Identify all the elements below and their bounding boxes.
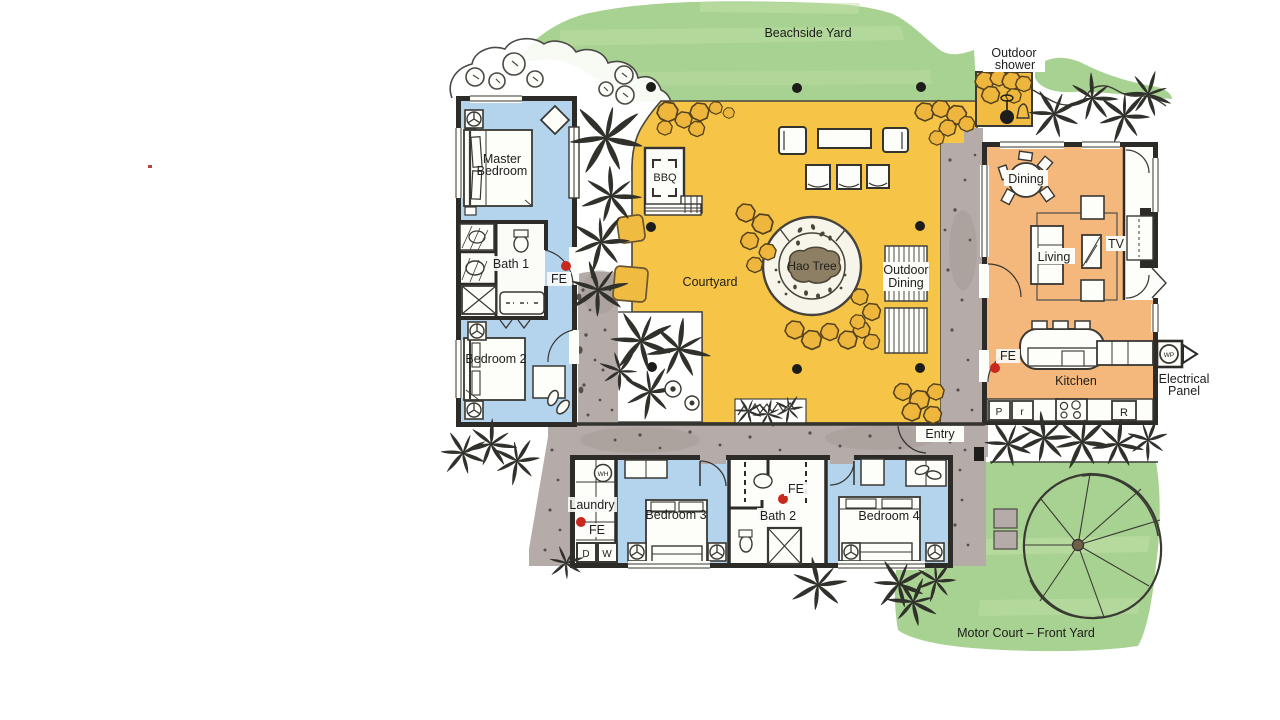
svg-text:Laundry: Laundry	[569, 498, 615, 512]
svg-text:FE: FE	[551, 272, 567, 286]
svg-text:W: W	[602, 549, 612, 560]
svg-text:TV: TV	[1108, 237, 1125, 251]
svg-text:Dining: Dining	[888, 276, 923, 290]
svg-text:Bath 1: Bath 1	[493, 257, 529, 271]
svg-text:shower: shower	[995, 58, 1035, 72]
svg-text:Motor Court – Front Yard: Motor Court – Front Yard	[957, 626, 1095, 640]
svg-text:BBQ: BBQ	[653, 172, 677, 184]
svg-text:Bedroom 4: Bedroom 4	[858, 509, 919, 523]
svg-text:Bath 2: Bath 2	[760, 509, 796, 523]
svg-text:Bedroom: Bedroom	[477, 164, 528, 178]
svg-text:Bedroom 3: Bedroom 3	[645, 508, 706, 522]
svg-text:Bedroom 2: Bedroom 2	[465, 352, 526, 366]
svg-text:Hao Tree: Hao Tree	[787, 259, 837, 273]
svg-text:Entry: Entry	[925, 427, 955, 441]
svg-text:Kitchen: Kitchen	[1055, 374, 1097, 388]
svg-text:FE: FE	[589, 523, 605, 537]
svg-text:D: D	[582, 549, 589, 560]
svg-text:WP: WP	[1164, 352, 1174, 359]
svg-text:FE: FE	[1000, 349, 1016, 363]
svg-text:Panel: Panel	[1168, 384, 1200, 398]
svg-text:R: R	[1120, 407, 1128, 419]
svg-text:Beachside Yard: Beachside Yard	[764, 26, 851, 40]
svg-text:Living: Living	[1038, 250, 1071, 264]
svg-text:P: P	[996, 407, 1003, 418]
svg-text:Dining: Dining	[1008, 172, 1043, 186]
svg-text:WH: WH	[598, 471, 609, 478]
svg-text:Outdoor: Outdoor	[883, 263, 928, 277]
svg-text:FE: FE	[788, 482, 804, 496]
svg-text:Courtyard: Courtyard	[683, 275, 738, 289]
